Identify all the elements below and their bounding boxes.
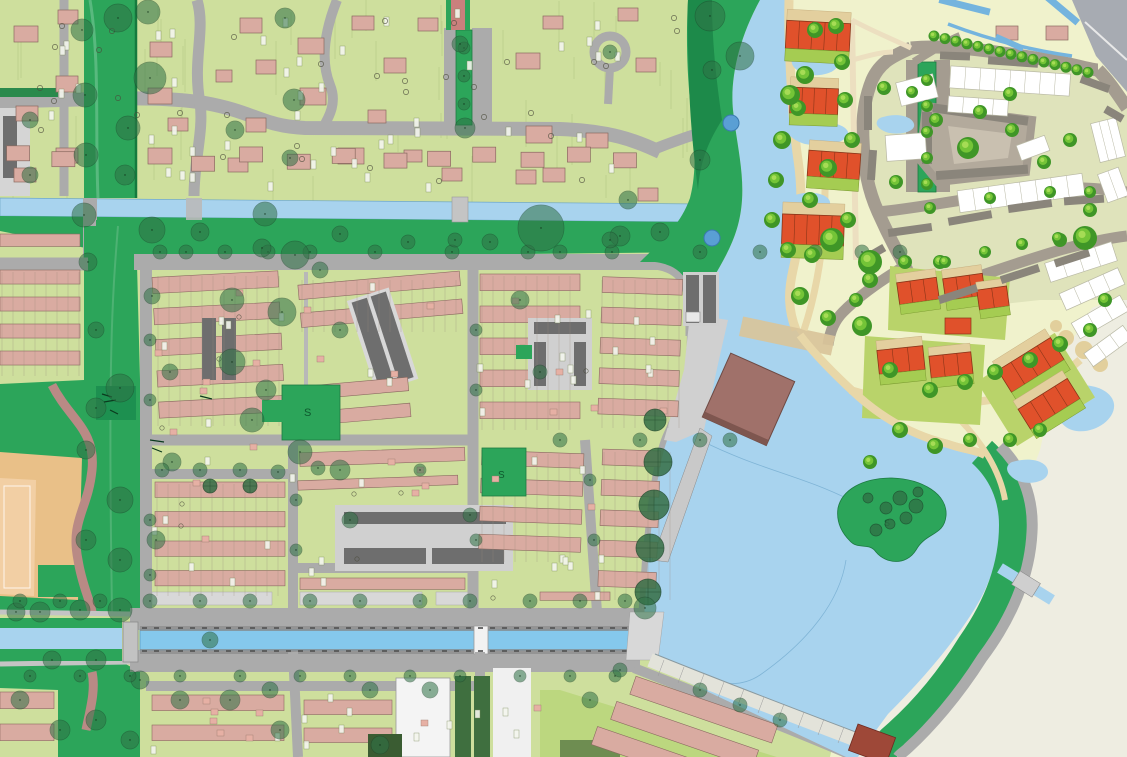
- svg-text:S: S: [304, 407, 311, 419]
